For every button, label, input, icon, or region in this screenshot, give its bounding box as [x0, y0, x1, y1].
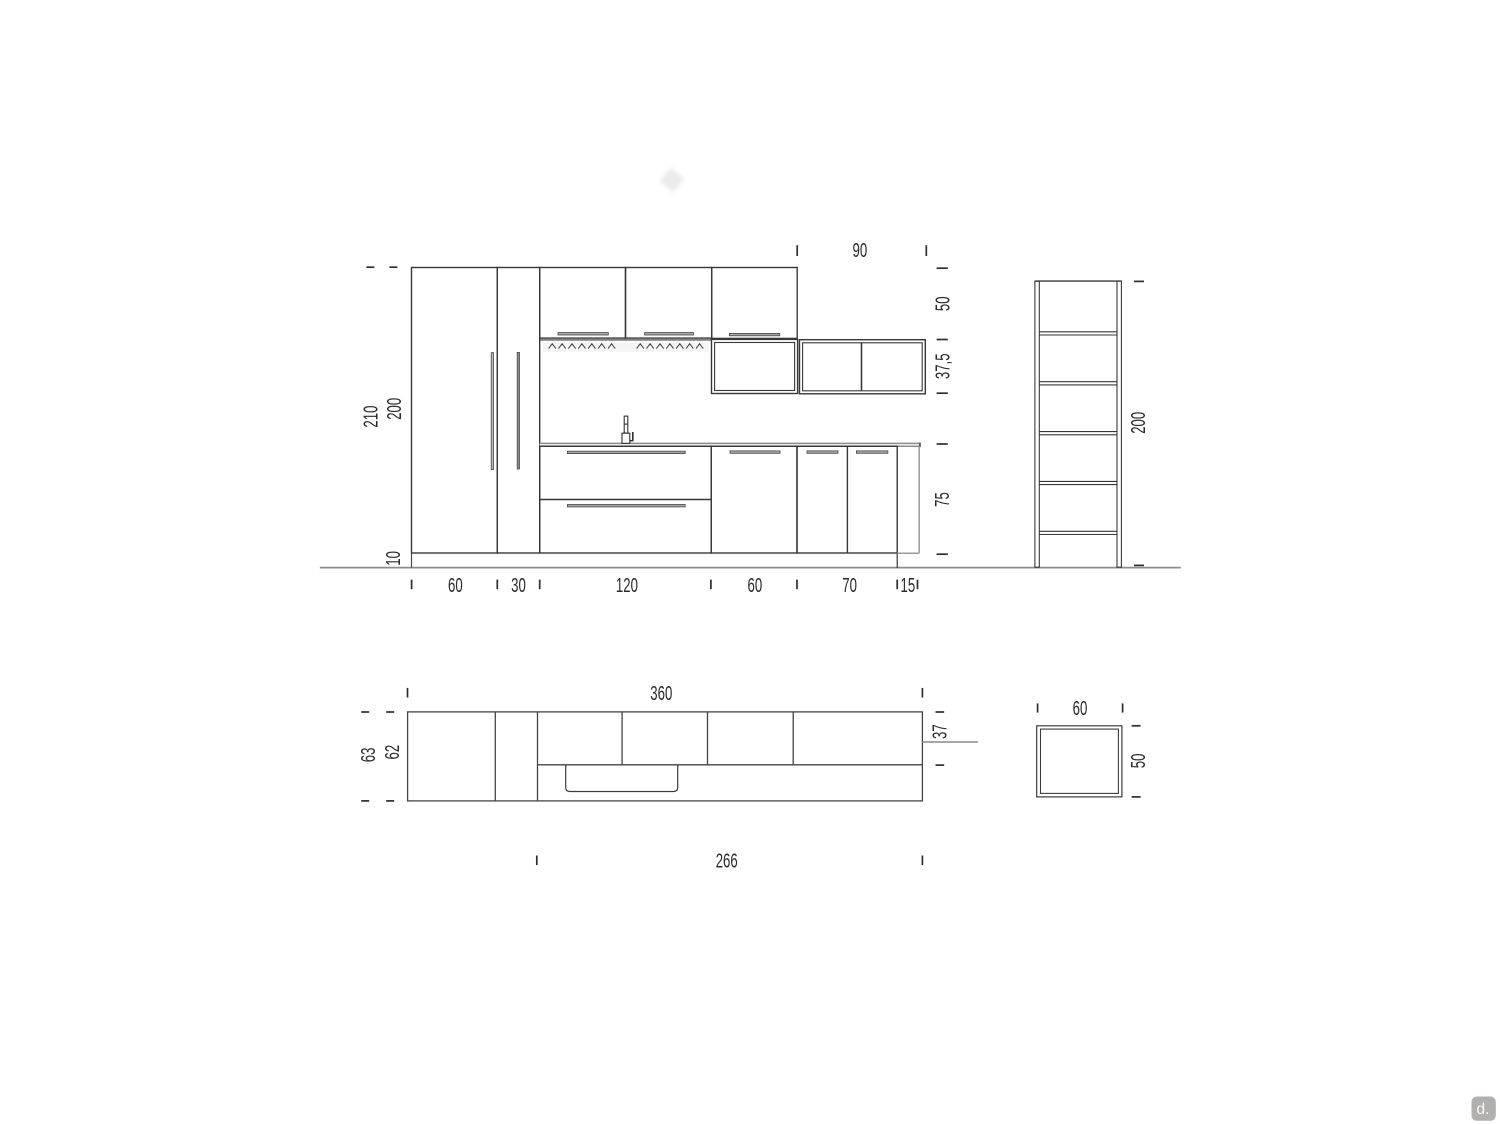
svg-text:63: 63	[357, 748, 379, 763]
svg-text:30: 30	[511, 574, 526, 596]
svg-text:50: 50	[1127, 754, 1149, 769]
svg-text:60: 60	[748, 574, 763, 596]
svg-text:90: 90	[853, 239, 868, 261]
svg-text:210: 210	[360, 406, 382, 428]
svg-text:75: 75	[931, 492, 953, 507]
svg-text:d.: d.	[1477, 1101, 1490, 1118]
svg-text:200: 200	[383, 398, 405, 420]
svg-text:60: 60	[1073, 697, 1088, 719]
svg-text:60: 60	[448, 574, 463, 596]
svg-text:15: 15	[901, 574, 916, 596]
svg-text:50: 50	[932, 296, 954, 311]
svg-text:62: 62	[381, 745, 403, 760]
svg-text:360: 360	[650, 682, 672, 704]
svg-text:70: 70	[842, 574, 857, 596]
svg-text:200: 200	[1127, 412, 1149, 434]
svg-text:266: 266	[716, 850, 738, 872]
svg-text:10: 10	[382, 551, 404, 566]
svg-text:120: 120	[616, 574, 638, 596]
svg-text:37,5: 37,5	[932, 353, 954, 379]
svg-text:37: 37	[929, 724, 951, 739]
